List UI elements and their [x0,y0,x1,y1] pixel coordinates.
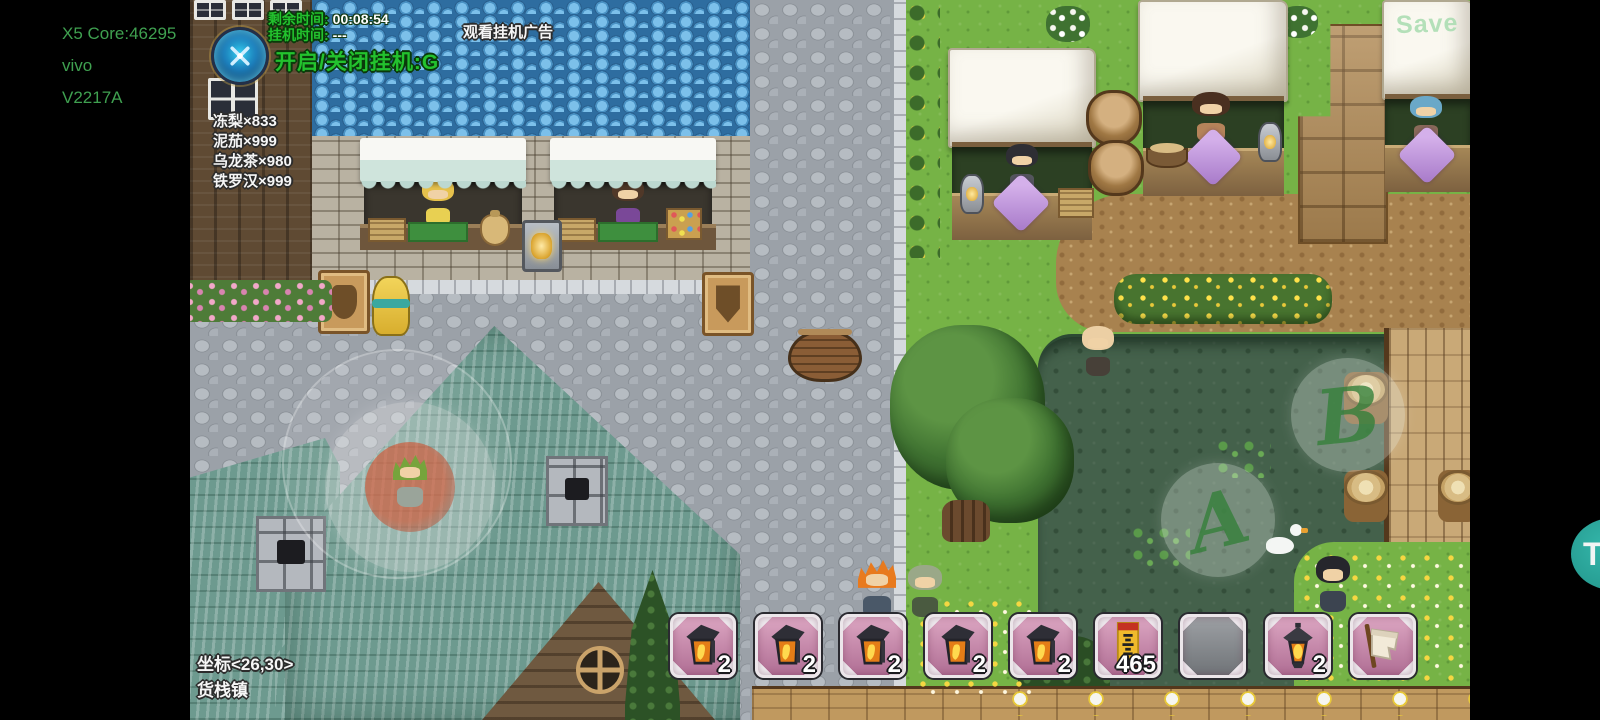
slot-count: 2 [973,651,986,679]
watermark-line: V2217A [62,82,176,114]
sword-cross-glyph [223,39,257,73]
watch-ad-button[interactable]: 观看挂机广告 [463,21,553,42]
watermark-line: vivo [62,50,176,82]
game-viewport[interactable]: Save [190,0,1470,720]
hotbar-slot-5[interactable]: 2 [1010,614,1076,678]
white-flower-bush [1046,6,1090,42]
idle-time: 挂机时间:--- [268,25,347,45]
tree-trunk [942,500,990,542]
npc-monk [1082,326,1114,376]
shop-awning [550,138,716,182]
hotbar-slot-3[interactable]: 2 [840,614,906,678]
lamp-glow [531,233,551,259]
counter-lantern [960,174,984,214]
hotbar-slot-7[interactable] [1180,614,1246,678]
button-a[interactable]: A [1161,463,1275,577]
coordinates-label: 坐标<26,30> [197,650,293,675]
pier-flowers [1010,690,1470,716]
stall-awning [948,48,1096,148]
town-name-label: 货栈镇 [197,676,248,701]
toggle-idle-button[interactable]: 开启/关闭挂机:G [275,46,439,76]
stall-awning [1138,0,1288,102]
shield-icon [716,285,740,322]
market-stall [1138,0,1288,196]
inventory-item: 乌龙茶×980 [213,152,292,172]
slot-count: 2 [803,651,816,679]
hotbar-slot-9[interactable] [1350,614,1416,678]
barrel [1088,140,1144,196]
button-b-label: B [1311,367,1384,462]
counter-lantern [1258,122,1282,162]
hotbar-slot-8[interactable]: 2 [1265,614,1331,678]
idle-time-label: 挂机时间: [268,27,329,43]
npc-darkhair [1316,556,1350,612]
chimney [546,456,608,526]
assist-floating-button[interactable]: T [1571,518,1600,590]
barrel [1086,90,1142,146]
slot-count: 2 [718,651,731,679]
round-window [576,646,624,694]
building-window [232,0,264,20]
inventory-list: 冻梨×833 泥茄×999 乌龙茶×980 铁罗汉×999 [213,112,292,192]
flower-hedge [1114,274,1332,324]
pink-flowerbed [190,280,332,322]
food-bowl [1146,148,1188,168]
button-b[interactable]: B [1291,358,1405,472]
slot-count: 2 [1058,651,1071,679]
money-bag [480,214,510,246]
hotbar-slot-1[interactable]: 2 [670,614,736,678]
building-window [194,0,226,20]
save-sign-text: Save [1396,9,1459,40]
crossed-swords-emblem-icon[interactable] [211,27,269,85]
boat-prop [788,330,862,382]
idle-time-value: --- [333,27,347,43]
slot-count: 465 [1116,651,1156,679]
letterbox-right: T [1472,0,1600,720]
goods-box [1058,188,1094,218]
inventory-item: 冻梨×833 [213,112,292,132]
shop-awning [360,138,526,182]
letterbox-left: X5 Core:46295 vivo V2217A [0,0,190,720]
inventory-item: 铁罗汉×999 [213,172,292,192]
wall-lamp [522,220,562,272]
market-stall [948,48,1096,240]
goods-box [558,218,596,242]
goods-box [368,218,406,242]
shop-window [360,138,526,250]
market-stall-save: Save [1382,0,1470,192]
hotbar-slot-6[interactable]: 465 [1095,614,1161,678]
scroll-item-icon [1359,622,1407,670]
hotbar-slot-2[interactable]: 2 [755,614,821,678]
money-bag-icon [331,285,357,320]
tree-stump [1344,470,1388,522]
player-character-orange [858,560,896,618]
flower-column [906,0,940,258]
npc-companion [908,565,942,617]
npc-yellow-lantern [372,276,410,336]
game-screen: Save [0,0,1600,720]
shop-window [550,138,716,250]
counter-cloth-green [598,222,658,242]
slot-count: 2 [888,651,901,679]
tree-stump [1438,470,1470,522]
assist-button-label: T [1583,536,1600,573]
inventory-item: 泥茄×999 [213,132,292,152]
flower-box [666,208,702,240]
counter-cloth-green [408,222,468,242]
device-watermark: X5 Core:46295 vivo V2217A [62,18,176,114]
joystick-character [393,455,427,507]
button-a-label: A [1179,470,1258,571]
watermark-line: X5 Core:46295 [62,18,176,50]
hotbar-slot-4[interactable]: 2 [925,614,991,678]
slot-count: 2 [1313,651,1326,679]
shop-sign-shield [702,272,754,336]
